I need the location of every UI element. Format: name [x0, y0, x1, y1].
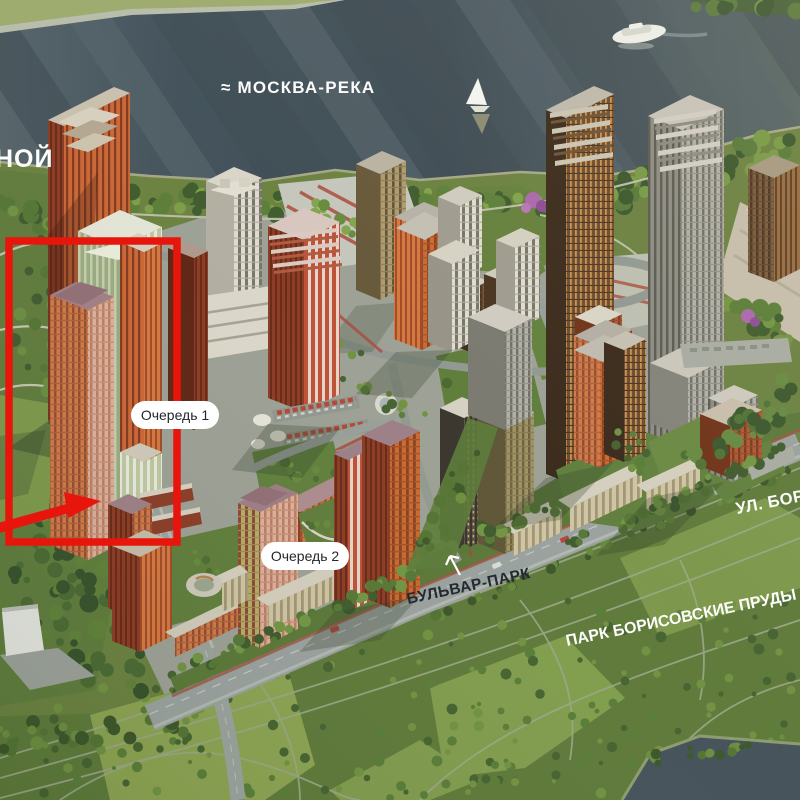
svg-text:Очередь 2: Очередь 2 [271, 548, 340, 564]
svg-text:Очередь 1: Очередь 1 [141, 407, 210, 423]
svg-text:≈ МОСКВА-РЕКА: ≈ МОСКВА-РЕКА [221, 78, 375, 97]
svg-text:НОЙ: НОЙ [0, 143, 53, 173]
